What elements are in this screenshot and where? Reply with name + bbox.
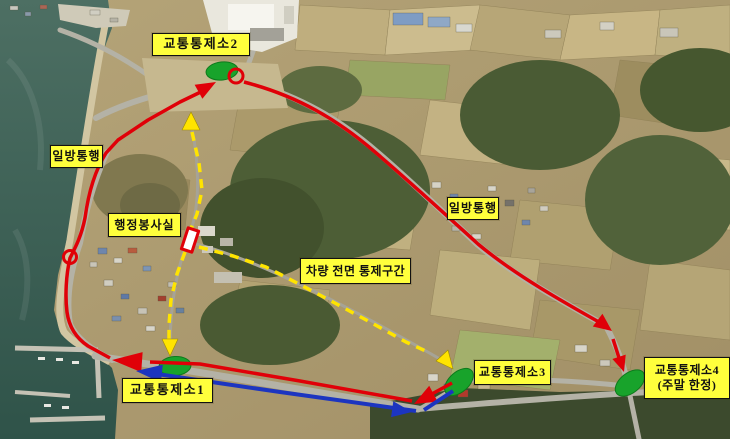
label-control-post-3: 교통통제소3 [474, 360, 551, 385]
label-oneway-right: 일방통행 [447, 197, 499, 220]
label-control-post-4-line1: 교통통제소4 [655, 363, 719, 378]
label-control-post-4-line2: (주말 한정) [658, 378, 717, 393]
annotated-aerial-map: 교통통제소2 일방통행 행정봉사실 차량 전면 통제구간 일방통행 교통통제소3… [0, 0, 730, 439]
label-vehicle-control-section: 차량 전면 통제구간 [300, 258, 411, 284]
label-oneway-left: 일방통행 [50, 145, 103, 168]
label-control-post-2: 교통통제소2 [152, 33, 250, 56]
label-control-post-4: 교통통제소4 (주말 한정) [644, 357, 730, 399]
label-admin-office: 행정봉사실 [108, 213, 181, 237]
label-control-post-1: 교통통제소1 [122, 378, 213, 403]
